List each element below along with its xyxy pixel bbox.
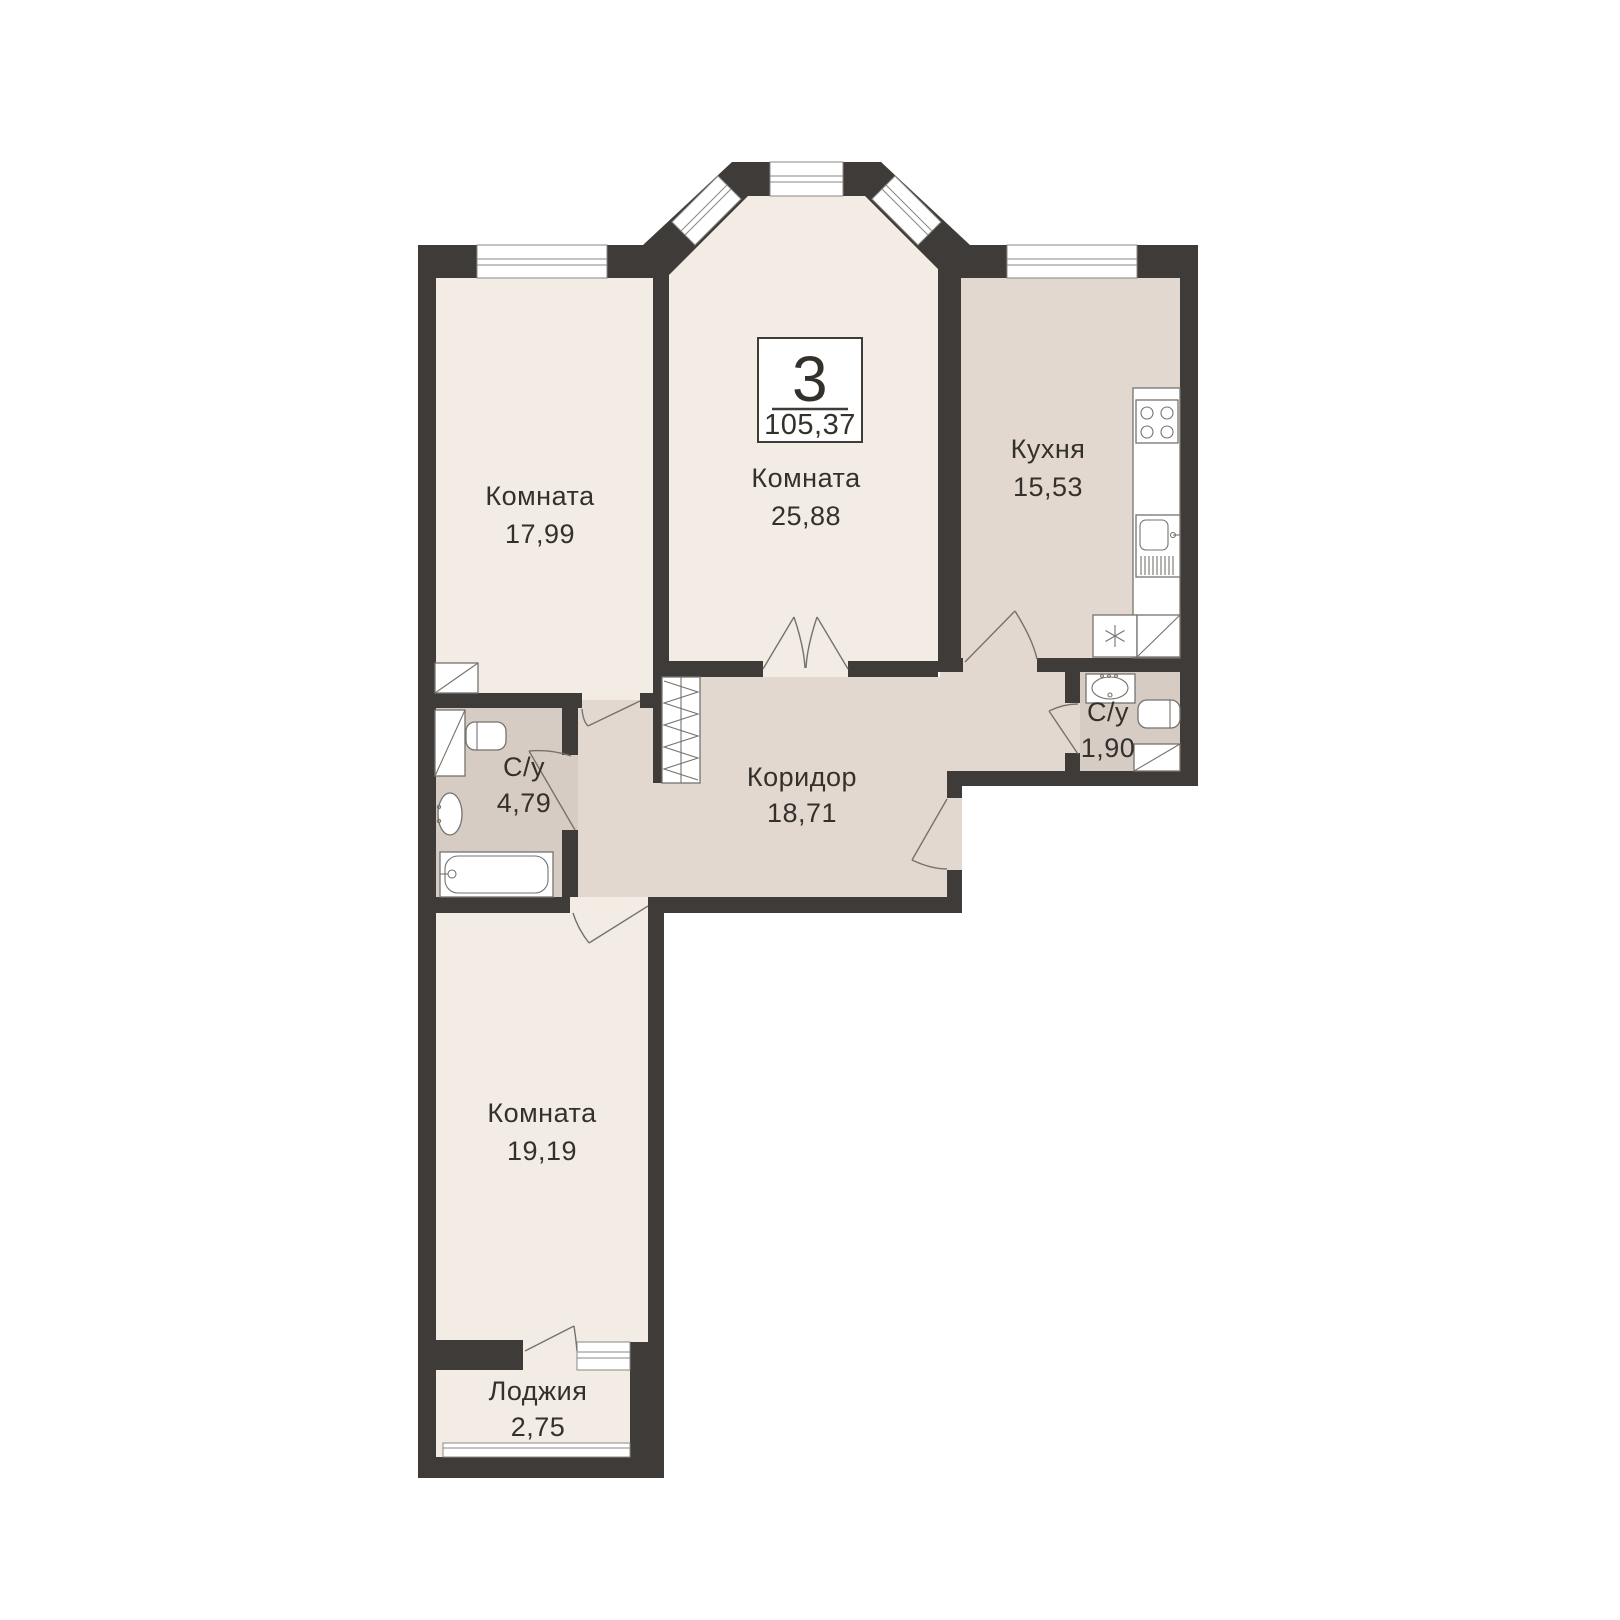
window-loggia-glazing xyxy=(443,1443,630,1457)
room1-wardrobe-icon xyxy=(435,663,478,693)
apartment-badge: 3 105,37 xyxy=(758,338,862,442)
bath1-area: 4,79 xyxy=(497,788,552,818)
washbasin-icon xyxy=(437,793,462,835)
toilet2-icon xyxy=(1138,700,1180,728)
window-kitchen xyxy=(1007,245,1137,278)
window-loggia-partition xyxy=(577,1342,630,1370)
stove-icon xyxy=(1136,400,1178,443)
wardrobe-icon xyxy=(662,677,700,783)
wall-loggia-bottom xyxy=(418,1457,663,1478)
fridge-icon xyxy=(1093,615,1137,657)
bath2-area: 1,90 xyxy=(1081,733,1136,763)
bathtub-icon xyxy=(440,852,553,897)
room2-area: 25,88 xyxy=(771,501,841,531)
wall-bath2-left-bottom xyxy=(1065,753,1080,771)
wall-room2-bottom-right xyxy=(848,661,938,677)
wall-entry-top xyxy=(947,786,962,798)
window-bay-top xyxy=(770,162,843,196)
badge-rooms-count: 3 xyxy=(792,343,828,415)
wall-bath1-right-top xyxy=(562,708,578,755)
duct-shaft-icon xyxy=(435,710,465,776)
kitchen-name: Кухня xyxy=(1011,434,1086,464)
window-room1 xyxy=(477,245,607,278)
wall-kitchen-bottom-left xyxy=(938,658,963,672)
bath1-name: С/у xyxy=(503,752,545,782)
room1-name: Комната xyxy=(485,481,595,511)
room1-area: 17,99 xyxy=(505,519,575,549)
badge-total-area: 105,37 xyxy=(764,409,856,441)
room2-name: Комната xyxy=(751,463,861,493)
kitchen-sink-icon xyxy=(1136,515,1180,577)
wall-room1-bottom-right xyxy=(640,693,653,708)
loggia-name: Лоджия xyxy=(489,1376,588,1406)
kitchen-cabinet-icon xyxy=(1137,615,1180,657)
wall-room2-kitchen xyxy=(938,278,961,661)
corridor-floor-left xyxy=(578,700,665,897)
corridor-floor-nook xyxy=(940,658,1080,786)
bath2-cabinet-icon xyxy=(1134,744,1180,771)
corridor-name: Коридор xyxy=(747,762,857,792)
wall-bath2-left-top xyxy=(1065,672,1080,703)
corridor-area: 18,71 xyxy=(767,798,837,828)
wall-bath1-right-bottom xyxy=(562,830,578,897)
toilet-icon xyxy=(466,722,506,750)
wall-room1-bottom-left xyxy=(418,693,582,708)
kitchen-area: 15,53 xyxy=(1013,472,1083,502)
bath2-name: С/у xyxy=(1087,697,1129,727)
wall-left-outer xyxy=(418,245,436,1478)
wall-closet-stub xyxy=(653,677,662,783)
wall-room3-right xyxy=(648,913,664,1342)
room3-area: 19,19 xyxy=(507,1136,577,1166)
wall-corridor-bottom-right xyxy=(648,897,962,913)
wall-kitchen-bottom-right xyxy=(1037,658,1198,672)
floor-plan-drawing: 3 105,37 Комната 17,99 Комната 25,88 Кух… xyxy=(0,0,1620,1620)
wall-corridor-bottom-left xyxy=(418,897,570,913)
loggia-area: 2,75 xyxy=(511,1412,566,1442)
wall-right-outer xyxy=(1180,245,1198,786)
floor-plan-page: 3 105,37 Комната 17,99 Комната 25,88 Кух… xyxy=(0,0,1620,1620)
wall-room1-room2 xyxy=(653,252,669,677)
wall-loggia-partition xyxy=(433,1340,523,1370)
room3-name: Комната xyxy=(487,1098,597,1128)
wall-room2-bottom-left xyxy=(653,661,763,677)
wall-bath2-bottom xyxy=(947,771,1198,786)
